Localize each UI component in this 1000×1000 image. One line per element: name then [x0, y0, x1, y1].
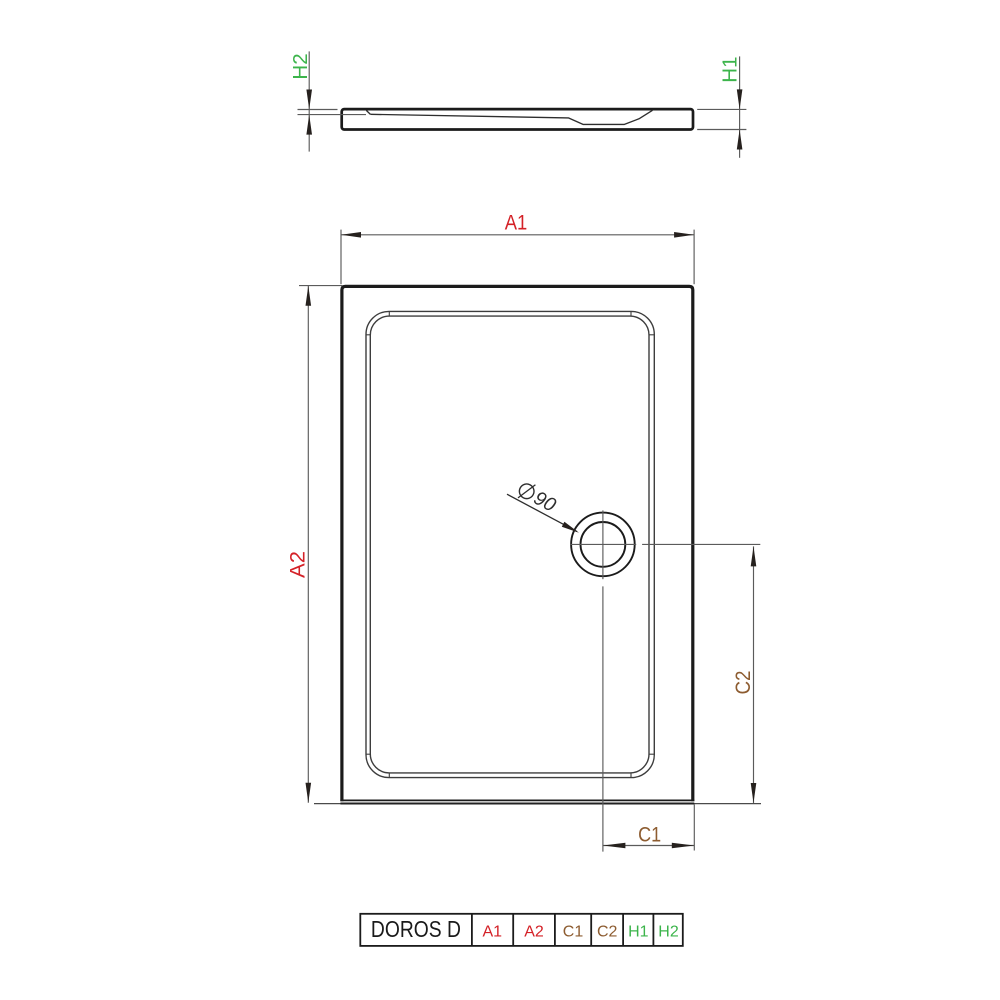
svg-text:A2: A2 [286, 551, 309, 578]
svg-text:H2: H2 [289, 53, 312, 79]
svg-text:C1: C1 [638, 823, 661, 846]
svg-text:C2: C2 [732, 671, 755, 695]
svg-text:C2: C2 [597, 923, 618, 940]
svg-text:A1: A1 [483, 923, 503, 940]
svg-text:H2: H2 [658, 923, 679, 940]
svg-text:A1: A1 [505, 212, 528, 235]
svg-text:H1: H1 [718, 56, 741, 82]
svg-text:H1: H1 [628, 923, 649, 940]
svg-text:DOROS D: DOROS D [371, 916, 461, 942]
svg-text:C1: C1 [563, 923, 584, 940]
svg-text:A2: A2 [524, 923, 544, 940]
